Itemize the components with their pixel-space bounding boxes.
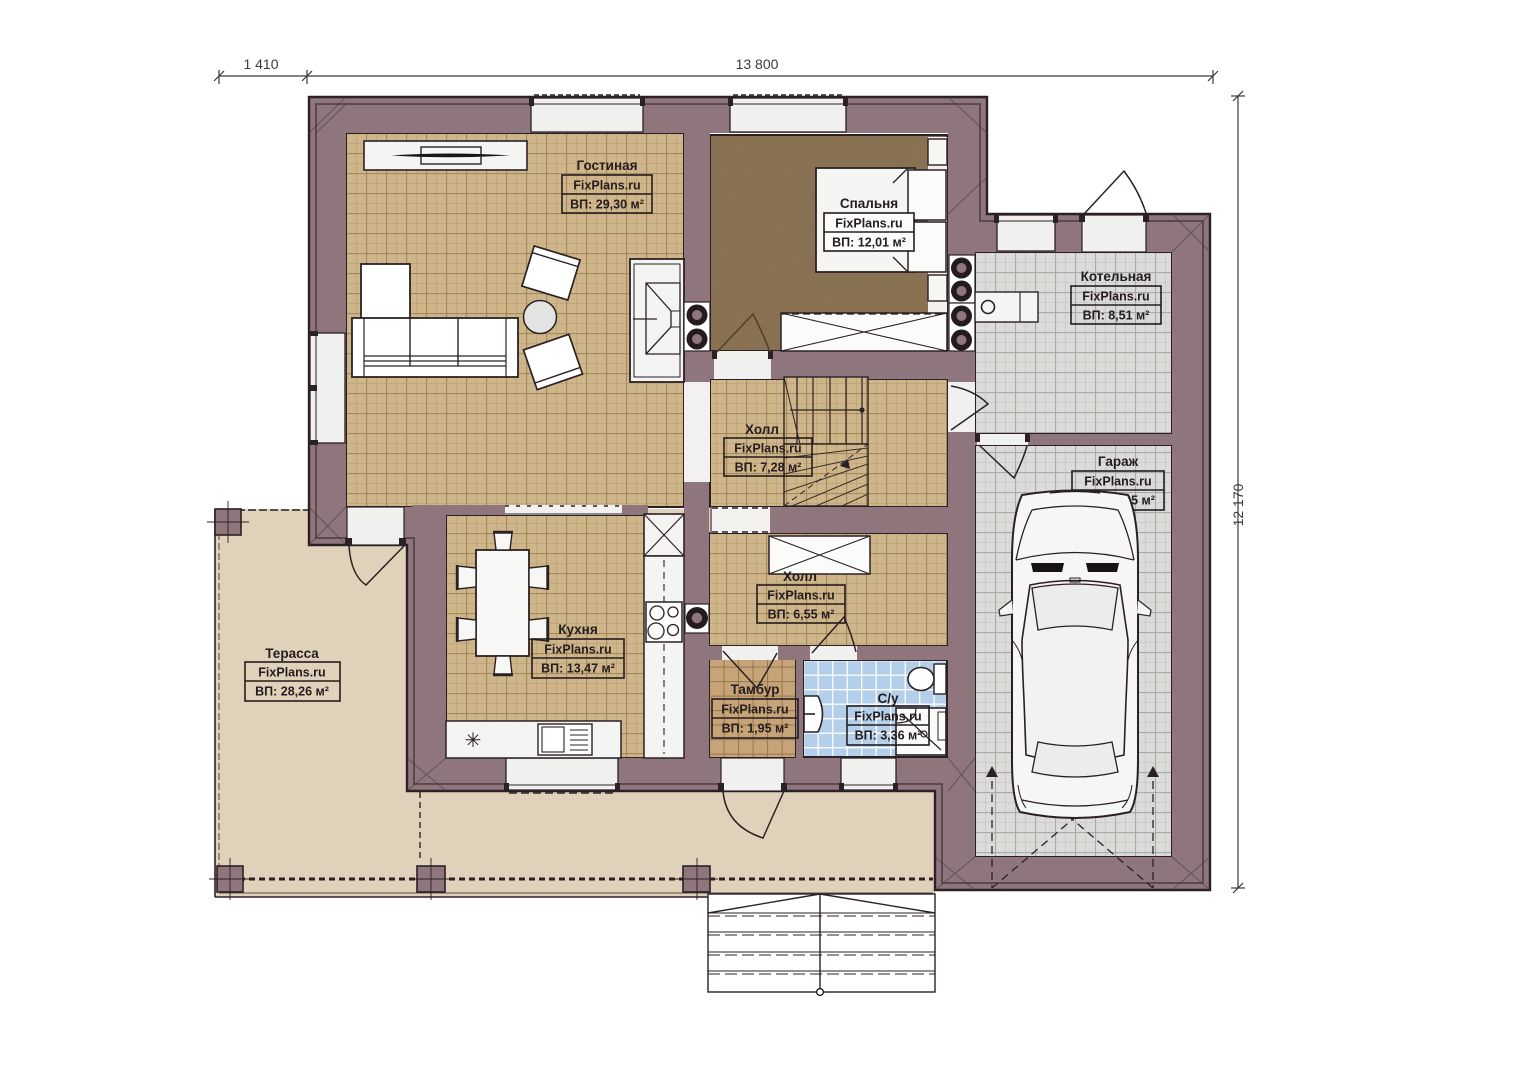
svg-text:Кухня: Кухня: [558, 622, 597, 637]
svg-text:ВП: 1,95 м²: ВП: 1,95 м²: [722, 722, 789, 736]
svg-text:FixPlans.ru: FixPlans.ru: [573, 179, 640, 193]
svg-text:FixPlans.ru: FixPlans.ru: [734, 442, 801, 456]
svg-text:ВП: 7,28 м²: ВП: 7,28 м²: [735, 461, 802, 475]
svg-text:13 800: 13 800: [736, 56, 779, 72]
svg-text:FixPlans.ru: FixPlans.ru: [854, 710, 921, 724]
svg-text:1 410: 1 410: [243, 56, 278, 72]
svg-text:Котельная: Котельная: [1081, 269, 1152, 284]
svg-text:FixPlans.ru: FixPlans.ru: [835, 217, 902, 231]
svg-text:ВП: 12,01 м²: ВП: 12,01 м²: [832, 236, 906, 250]
svg-text:✳: ✳: [465, 730, 482, 752]
svg-text:FixPlans.ru: FixPlans.ru: [1082, 290, 1149, 304]
svg-text:ВП: 6,55 м²: ВП: 6,55 м²: [768, 608, 835, 622]
svg-text:FixPlans.ru: FixPlans.ru: [544, 643, 611, 657]
svg-text:FixPlans.ru: FixPlans.ru: [721, 703, 788, 717]
svg-text:Холл: Холл: [783, 569, 817, 584]
svg-text:ВП: 3,36 м²: ВП: 3,36 м²: [855, 729, 922, 743]
svg-text:С/у: С/у: [877, 691, 899, 706]
svg-text:ВП: 28,26 м²: ВП: 28,26 м²: [255, 685, 329, 699]
svg-text:FixPlans.ru: FixPlans.ru: [1084, 475, 1151, 489]
svg-text:ВП: 29,30 м²: ВП: 29,30 м²: [570, 198, 644, 212]
svg-text:ВП: 13,47 м²: ВП: 13,47 м²: [541, 662, 615, 676]
svg-text:FixPlans.ru: FixPlans.ru: [767, 589, 834, 603]
svg-text:Спальня: Спальня: [840, 196, 898, 211]
svg-text:Тамбур: Тамбур: [731, 682, 780, 697]
svg-text:Гараж: Гараж: [1098, 454, 1139, 469]
svg-text:Терасса: Терасса: [265, 646, 319, 661]
svg-text:12 170: 12 170: [1230, 483, 1246, 526]
svg-text:FixPlans.ru: FixPlans.ru: [258, 666, 325, 680]
svg-text:Гостиная: Гостиная: [576, 158, 637, 173]
svg-text:ВП: 8,51 м²: ВП: 8,51 м²: [1083, 309, 1150, 323]
svg-text:Холл: Холл: [745, 422, 779, 437]
